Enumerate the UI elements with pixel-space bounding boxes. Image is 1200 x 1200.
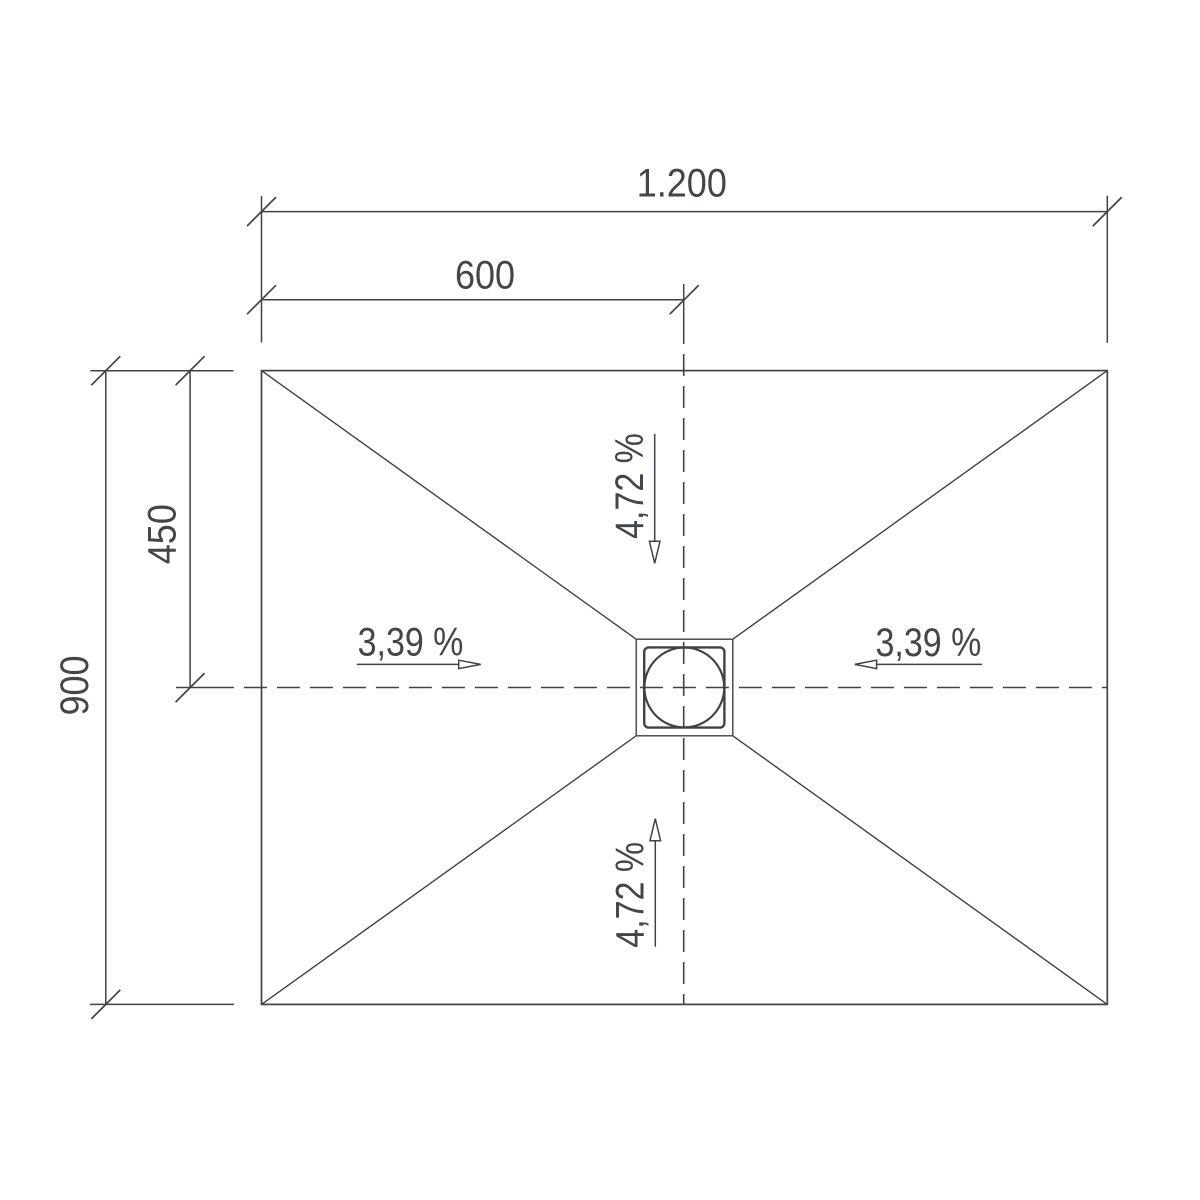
svg-text:3,39 %: 3,39 % xyxy=(875,619,981,664)
svg-text:3,39 %: 3,39 % xyxy=(358,619,464,664)
svg-text:900: 900 xyxy=(53,655,97,715)
svg-text:4,72 %: 4,72 % xyxy=(607,842,652,948)
svg-text:600: 600 xyxy=(455,254,515,298)
svg-text:4,72 %: 4,72 % xyxy=(607,433,652,539)
svg-text:450: 450 xyxy=(141,504,185,564)
svg-text:1.200: 1.200 xyxy=(637,162,727,206)
